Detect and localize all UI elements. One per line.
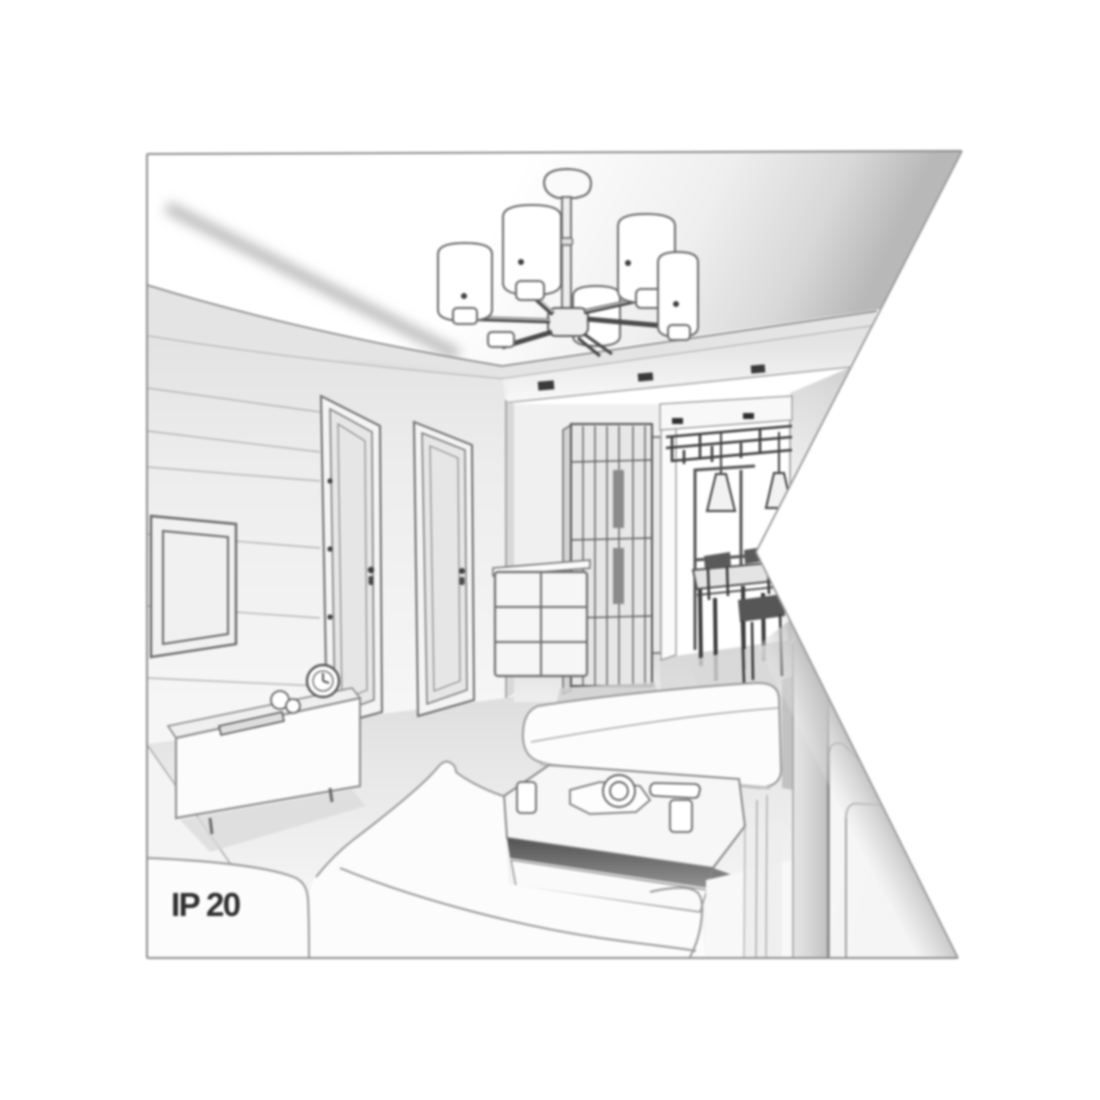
svg-text:IP 20: IP 20 bbox=[171, 886, 240, 923]
